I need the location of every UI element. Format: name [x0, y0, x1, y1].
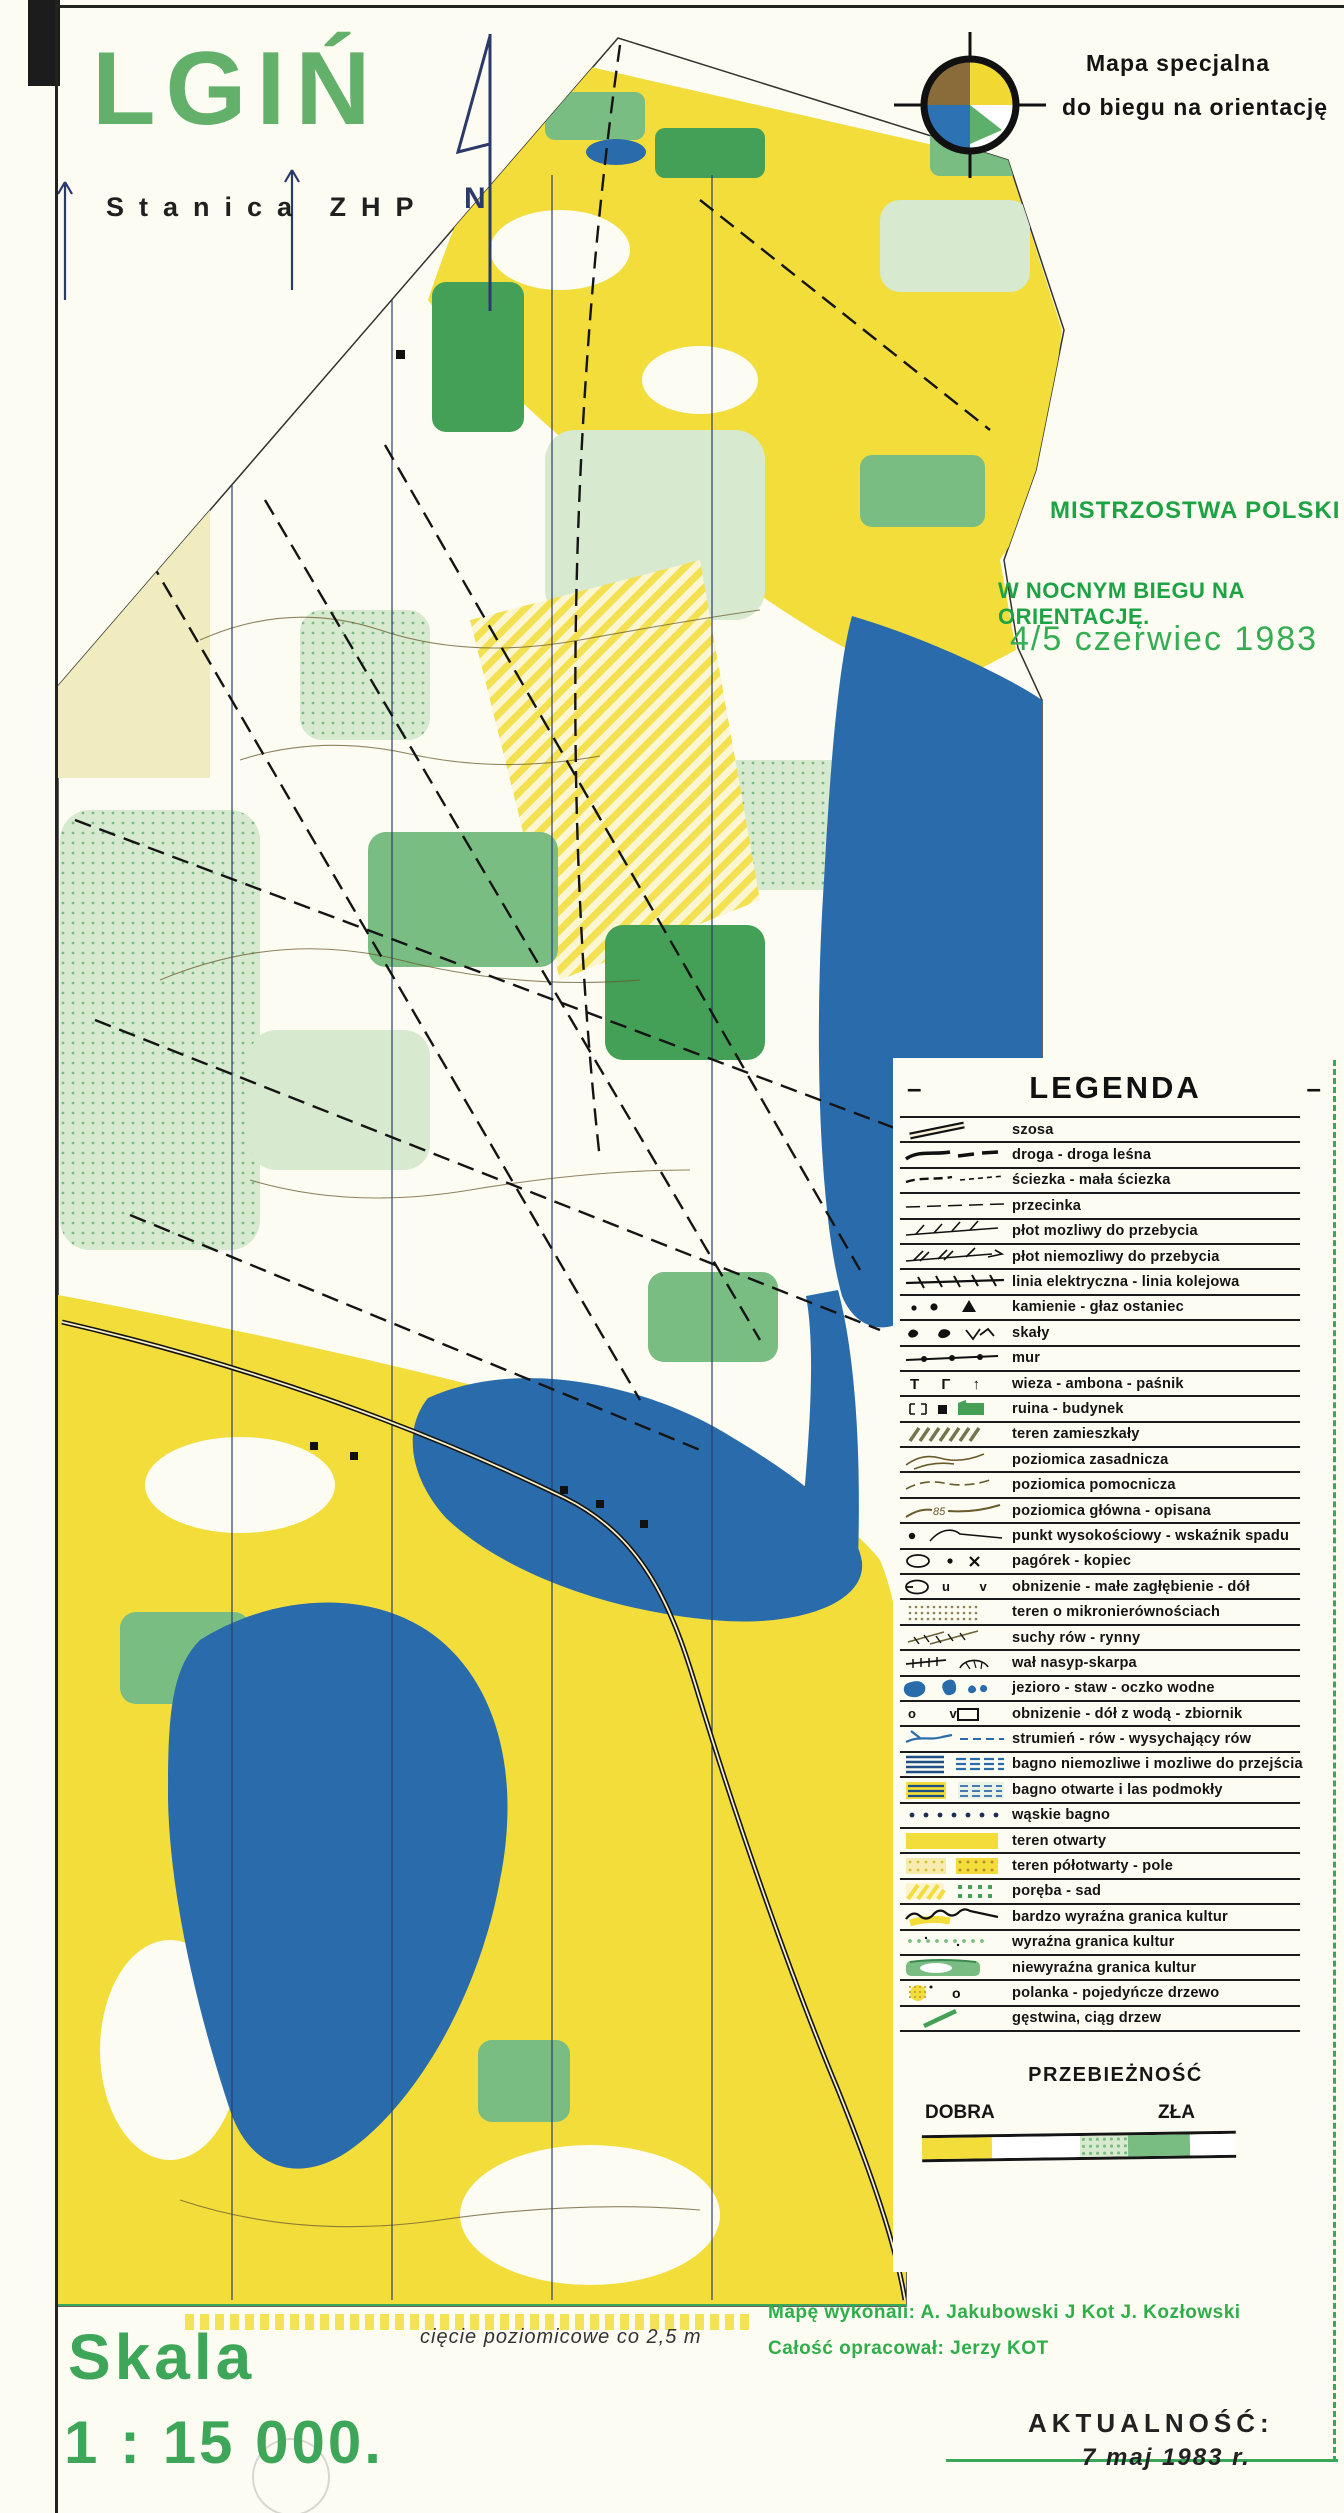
legend-symbol-bagno-icon [900, 1752, 1012, 1776]
runnability-seg-open [922, 2137, 992, 2159]
legend-row: gęstwina, ciąg drzew [900, 2005, 1300, 2030]
scan-left-edge [55, 0, 58, 2513]
svg-text:85: 85 [933, 1506, 946, 1518]
runnability-heading: PRZEBIEŻNOŚĆ [893, 2064, 1338, 2087]
legend-row: skały [900, 1319, 1300, 1344]
legend-label: wąskie bagno [1012, 1807, 1110, 1823]
legend-symbol-poreba-icon [900, 1879, 1012, 1903]
legend-symbol-waskie-bagno-icon [900, 1803, 1012, 1827]
legend-row: przecinka [900, 1192, 1300, 1217]
legend-label: wieza - ambona - paśnik [1012, 1376, 1184, 1392]
legend-rows: szosadroga - droga leśnaściezka - mała ś… [900, 1116, 1300, 2032]
legend-label: poziomica główna - opisana [1012, 1503, 1211, 1519]
legend-symbol-zamieszkaly-icon [900, 1422, 1012, 1446]
legend-label: poziomica zasadnicza [1012, 1452, 1168, 1468]
legend-symbol-obnizenie-icon: u v [900, 1575, 1012, 1599]
legend-symbol-poziomica-glowna-icon: 85 [900, 1499, 1012, 1523]
north-arrow-icon: N [438, 26, 538, 316]
legend-row: T Γ ↑wieza - ambona - paśnik [900, 1370, 1300, 1395]
legend-row: ruina - budynek [900, 1395, 1300, 1420]
legend-symbol-polanka-icon: o [900, 1981, 1012, 2005]
legend-label: linia elektryczna - linia kolejowa [1012, 1274, 1239, 1290]
legend-row: jezioro - staw - oczko wodne [900, 1675, 1300, 1700]
legend-label: ściezka - mała ściezka [1012, 1172, 1171, 1188]
legend-symbol-plot-niemozliwy-icon [900, 1245, 1012, 1269]
legend-dash-left: – [907, 1073, 924, 1104]
legend-label: szosa [1012, 1122, 1054, 1138]
legend-symbol-plot-mozliwy-icon [900, 1219, 1012, 1243]
legend-symbol-kamienie-icon [900, 1295, 1012, 1319]
legend-row: o vobnizenie - dół z wodą - zbiornik [900, 1700, 1300, 1725]
legend-symbol-gestwina-icon [900, 2006, 1012, 2030]
legend-label: ruina - budynek [1012, 1401, 1124, 1417]
legend-row: wał nasyp-skarpa [900, 1649, 1300, 1674]
legend-label: niewyraźna granica kultur [1012, 1960, 1196, 1976]
legend-dash-right: – [1307, 1073, 1324, 1104]
legend-label: wał nasyp-skarpa [1012, 1655, 1137, 1671]
legend-row: ściezka - mała ściezka [900, 1167, 1300, 1192]
legend-row: poziomica pomocnicza [900, 1471, 1300, 1496]
legend-symbol-pagorek-icon [900, 1549, 1012, 1573]
legend-symbol-wal-icon [900, 1651, 1012, 1675]
legend-symbol-polotwarty-icon [900, 1854, 1012, 1878]
map-sheet: N LGIŃ Stanica ZHP Mapa specjalna do bie… [0, 0, 1344, 2513]
legend-symbol-mur-icon [900, 1346, 1012, 1370]
legend-symbol-szosa-icon [900, 1118, 1012, 1142]
runnability-bad-label: ZŁA [1158, 2102, 1195, 2124]
runnability-seg-green [1128, 2134, 1190, 2156]
legend-heading-text: LEGENDA [1029, 1070, 1202, 1106]
legend-symbol-jezioro-icon [900, 1676, 1012, 1700]
legend-symbol-mikro-icon [900, 1600, 1012, 1624]
legend-label: droga - droga leśna [1012, 1147, 1151, 1163]
legend-label: bagno otwarte i las podmokły [1012, 1782, 1223, 1798]
scale-label: Skala [68, 2320, 255, 2394]
legend-symbol-teren-otwarty-icon [900, 1829, 1012, 1853]
runnability-good-label: DOBRA [925, 2102, 995, 2124]
legend-row: niewyraźna granica kultur [900, 1954, 1300, 1979]
legend-label: suchy rów - rynny [1012, 1630, 1140, 1646]
map-logo-icon [880, 30, 1060, 180]
credits-editor: Całość opracował: Jerzy KOT [768, 2338, 1049, 2360]
legend-symbol-punkt-icon [900, 1524, 1012, 1548]
runnability-seg-white [992, 2136, 1080, 2158]
legend-label: teren zamieszkały [1012, 1426, 1140, 1442]
legend-label: jezioro - staw - oczko wodne [1012, 1680, 1215, 1696]
page-title: LGIŃ [92, 30, 380, 149]
legend-symbol-skaly-icon [900, 1321, 1012, 1345]
legend-row: płot niemozliwy do przebycia [900, 1243, 1300, 1268]
legend-symbol-poziomica-zasadnicza-icon [900, 1448, 1012, 1472]
legend-heading: – LEGENDA – [893, 1070, 1338, 1106]
north-label: N [464, 182, 486, 215]
legend-row: poziomica zasadnicza [900, 1446, 1300, 1471]
legend-row: wąskie bagno [900, 1802, 1300, 1827]
legend-row: kamienie - głaz ostaniec [900, 1294, 1300, 1319]
legend-label: poziomica pomocnicza [1012, 1477, 1176, 1493]
currency-label: AKTUALNOŚĆ: [1028, 2408, 1274, 2439]
legend-row: teren zamieszkały [900, 1421, 1300, 1446]
legend-row: poręba - sad [900, 1878, 1300, 1903]
map-type-line1: Mapa specjalna [1086, 50, 1270, 77]
legend-symbol-sciezka-icon [900, 1168, 1012, 1192]
scan-top-edge [58, 5, 1344, 8]
legend-label: polanka - pojedyńcze drzewo [1012, 1985, 1219, 2001]
legend-row: szosa [900, 1116, 1300, 1141]
page-subtitle: Stanica ZHP [106, 192, 429, 223]
legend-row: suchy rów - rynny [900, 1624, 1300, 1649]
legend-label: teren otwarty [1012, 1833, 1106, 1849]
legend-label: bagno niemozliwe i mozliwe do przejścia [1012, 1756, 1303, 1772]
legend-symbol-granica-wyrazna-icon [900, 1930, 1012, 1954]
legend-label: teren półotwarty - pole [1012, 1858, 1173, 1874]
legend-label: obnizenie - dół z wodą - zbiornik [1012, 1706, 1242, 1722]
north-tick-arrows [58, 170, 299, 300]
legend-label: kamienie - głaz ostaniec [1012, 1299, 1184, 1315]
legend-row: płot mozliwy do przebycia [900, 1218, 1300, 1243]
legend-row: teren otwarty [900, 1827, 1300, 1852]
svg-text:o: o [952, 1985, 961, 2001]
legend-row: bagno otwarte i las podmokły [900, 1776, 1300, 1801]
legend-row: teren półotwarty - pole [900, 1852, 1300, 1877]
legend-symbol-granica-niewyrazna-icon [900, 1956, 1012, 1980]
legend-row: droga - droga leśna [900, 1141, 1300, 1166]
legend-symbol-linia-icon [900, 1270, 1012, 1294]
legend-row: punkt wysokościowy - wskaźnik spadu [900, 1522, 1300, 1547]
legend-label: pagórek - kopiec [1012, 1553, 1131, 1569]
legend-row: mur [900, 1345, 1300, 1370]
legend-symbol-przecinka-icon [900, 1194, 1012, 1218]
event-title: MISTRZOSTWA POLSKI [1050, 497, 1340, 525]
legend-symbol-suchy-row-icon [900, 1626, 1012, 1650]
event-date: 4/5 czerwiec 1983 [1010, 620, 1318, 659]
legend-label: strumień - rów - wysychający rów [1012, 1731, 1251, 1747]
legend-label: skały [1012, 1325, 1050, 1341]
legend-label: przecinka [1012, 1198, 1081, 1214]
legend-row: wyraźna granica kultur [900, 1929, 1300, 1954]
runnability-seg-lightgreen [1080, 2135, 1128, 2157]
legend-row: 85poziomica główna - opisana [900, 1497, 1300, 1522]
legend-symbol-wieza-icon: T Γ ↑ [900, 1372, 1012, 1396]
contour-interval-note: cięcie poziomicowe co 2,5 m [420, 2326, 702, 2349]
legend-label: wyraźna granica kultur [1012, 1934, 1175, 1950]
svg-text:T Γ ↑: T Γ ↑ [910, 1376, 989, 1393]
legend-row: pagórek - kopiec [900, 1548, 1300, 1573]
map-type-line2: do biegu na orientację [1062, 94, 1328, 121]
legend-label: bardzo wyraźna granica kultur [1012, 1909, 1228, 1925]
legend-row: teren o mikronierównościach [900, 1598, 1300, 1623]
legend-label: obnizenie - małe zagłębienie - dół [1012, 1579, 1250, 1595]
legend-row: bardzo wyraźna granica kultur [900, 1903, 1300, 1928]
legend-label: mur [1012, 1350, 1040, 1366]
currency-value: 7 maj 1983 r. [1082, 2444, 1251, 2472]
legend-row: u vobnizenie - małe zagłębienie - dół [900, 1573, 1300, 1598]
legend-symbol-strumien-icon [900, 1727, 1012, 1751]
legend-green-border-right [1333, 1060, 1336, 2462]
legend-row: strumień - rów - wysychający rów [900, 1725, 1300, 1750]
legend-row: linia elektryczna - linia kolejowa [900, 1268, 1300, 1293]
svg-text:u v: u v [942, 1579, 1000, 1594]
legend-label: płot niemozliwy do przebycia [1012, 1249, 1220, 1265]
legend-symbol-ruina-icon [900, 1397, 1012, 1421]
runnability-scale-bar [922, 2131, 1236, 2162]
runnability-seg-end [1190, 2134, 1236, 2156]
legend-label: gęstwina, ciąg drzew [1012, 2010, 1161, 2026]
legend-symbol-obnizenie-woda-icon: o v [900, 1702, 1012, 1726]
legend-label: teren o mikronierównościach [1012, 1604, 1220, 1620]
legend-row: opolanka - pojedyńcze drzewo [900, 1979, 1300, 2004]
legend-row: bagno niemozliwe i mozliwe do przejścia [900, 1751, 1300, 1776]
legend-symbol-poziomica-pomocnicza-icon [900, 1473, 1012, 1497]
scale-value: 1 : 15 000. [64, 2408, 384, 2477]
credits-makers: Mapę wykonali: A. Jakubowski J Kot J. Ko… [768, 2302, 1241, 2324]
legend-symbol-droga-icon [900, 1143, 1012, 1167]
legend-symbol-bagno-otwarte-icon [900, 1778, 1012, 1802]
legend-label: płot mozliwy do przebycia [1012, 1223, 1198, 1239]
legend-symbol-granica-bardzo-icon [900, 1905, 1012, 1929]
legend-label: punkt wysokościowy - wskaźnik spadu [1012, 1528, 1289, 1544]
legend-label: poręba - sad [1012, 1883, 1101, 1899]
